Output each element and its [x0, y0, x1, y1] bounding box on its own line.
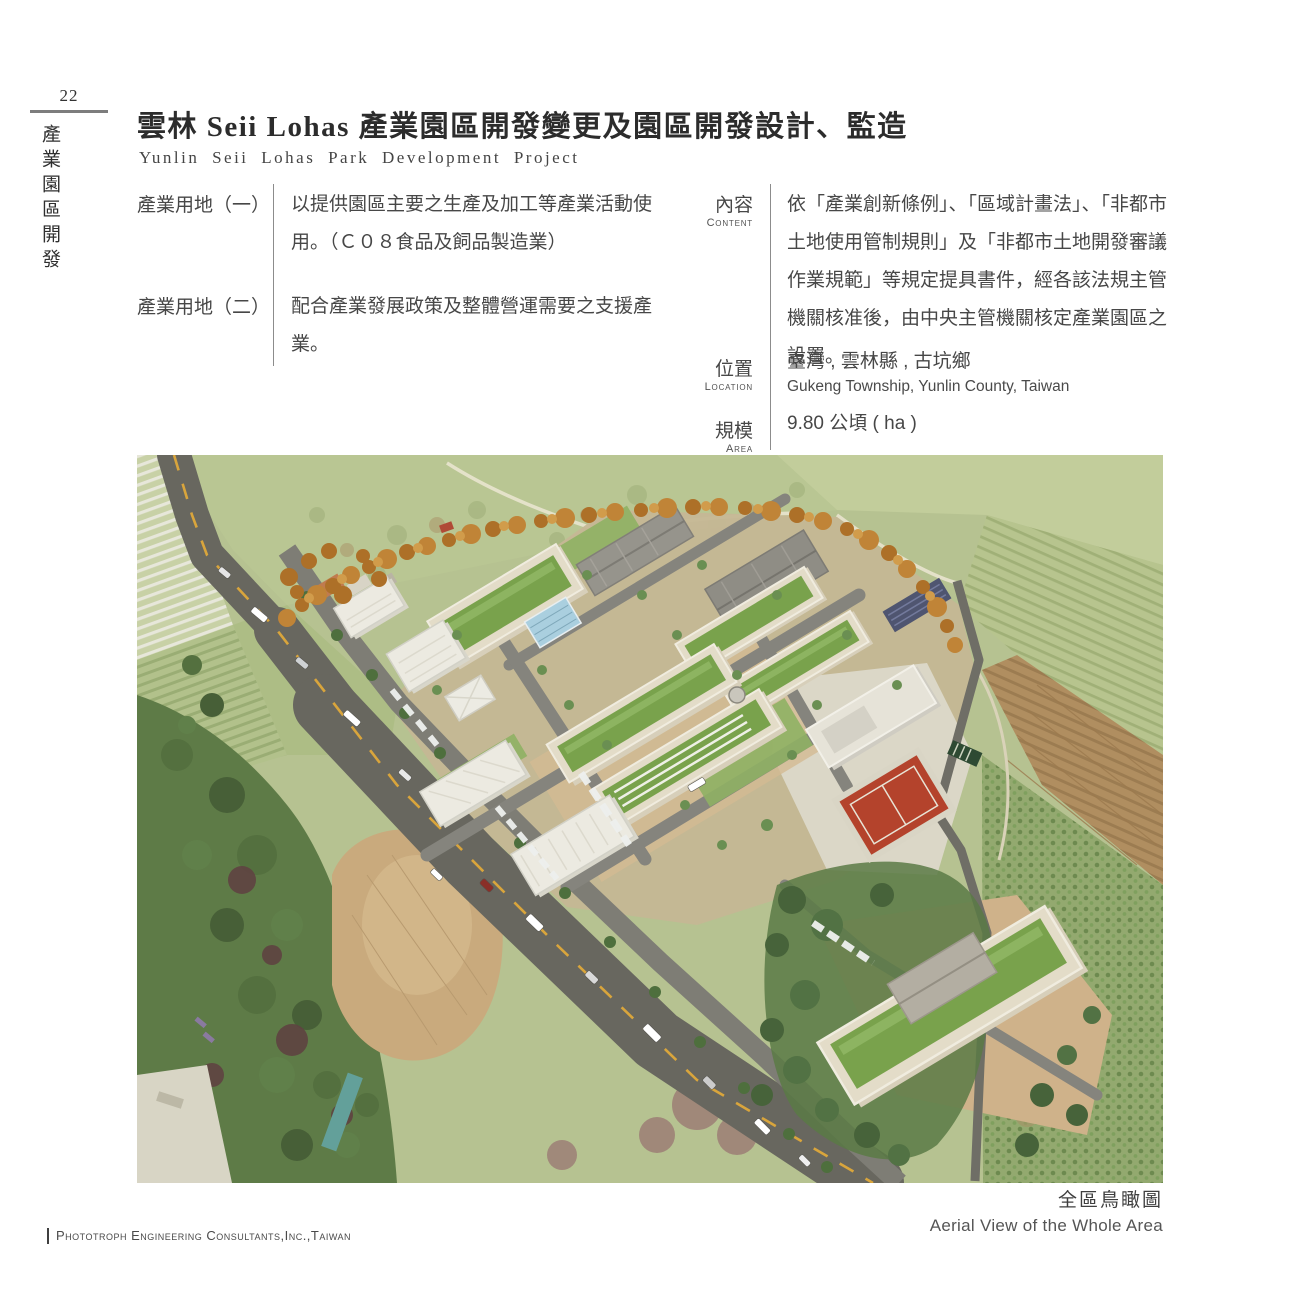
- figure-caption-zh: 全區鳥瞰圖: [663, 1188, 1163, 1213]
- landuse-1-desc: 以提供園區主要之生產及加工等產業活動使用。（Ｃ０８食品及飼品製造業）: [291, 186, 663, 262]
- figure-caption-en: Aerial View of the Whole Area: [663, 1213, 1163, 1238]
- content-label-en: Content: [620, 217, 753, 229]
- figure-caption: 全區鳥瞰圖 Aerial View of the Whole Area: [663, 1188, 1163, 1238]
- aerial-view-figure: [137, 455, 1163, 1183]
- landuse-2-label: 產業用地（二）: [137, 292, 270, 319]
- area-label-zh: 規模: [620, 416, 753, 443]
- page-number: 22: [30, 86, 108, 106]
- location-text-en: Gukeng Township, Yunlin County, Taiwan: [787, 378, 1167, 396]
- content-text: 依「產業創新條例」、「區域計畫法」、「非都市土地使用管制規則」及「非都市土地開發…: [787, 186, 1167, 376]
- area-label-en: Area: [620, 443, 753, 455]
- chapter-side-label: 產業園區開發: [36, 124, 63, 274]
- landuse-1-label: 產業用地（一）: [137, 190, 270, 217]
- page-number-rule: [30, 110, 108, 113]
- document-page: 22 產業園區開發 雲林 Seii Lohas 產業園區開發變更及園區開發設計、…: [0, 0, 1300, 1300]
- company-footer: Phototroph Engineering Consultants,Inc.,…: [47, 1228, 351, 1244]
- location-label-zh: 位置: [620, 354, 753, 381]
- landuse-2-desc: 配合產業發展政策及整體營運需要之支援產業。: [291, 288, 663, 364]
- area-text: 9.80 公頃 ( ha ): [787, 411, 1167, 437]
- landuse-divider: [273, 184, 274, 366]
- content-label-zh: 內容: [620, 190, 753, 217]
- project-title-en: Yunlin Seii Lohas Park Development Proje…: [139, 148, 579, 168]
- location-label-en: Location: [620, 381, 753, 393]
- aerial-rendering-svg: [137, 455, 1163, 1183]
- project-title-zh: 雲林 Seii Lohas 產業園區開發變更及園區開發設計、監造: [137, 103, 1167, 145]
- details-divider: [770, 184, 771, 450]
- location-text-zh: 臺灣 , 雲林縣 , 古坑鄉: [787, 349, 1167, 375]
